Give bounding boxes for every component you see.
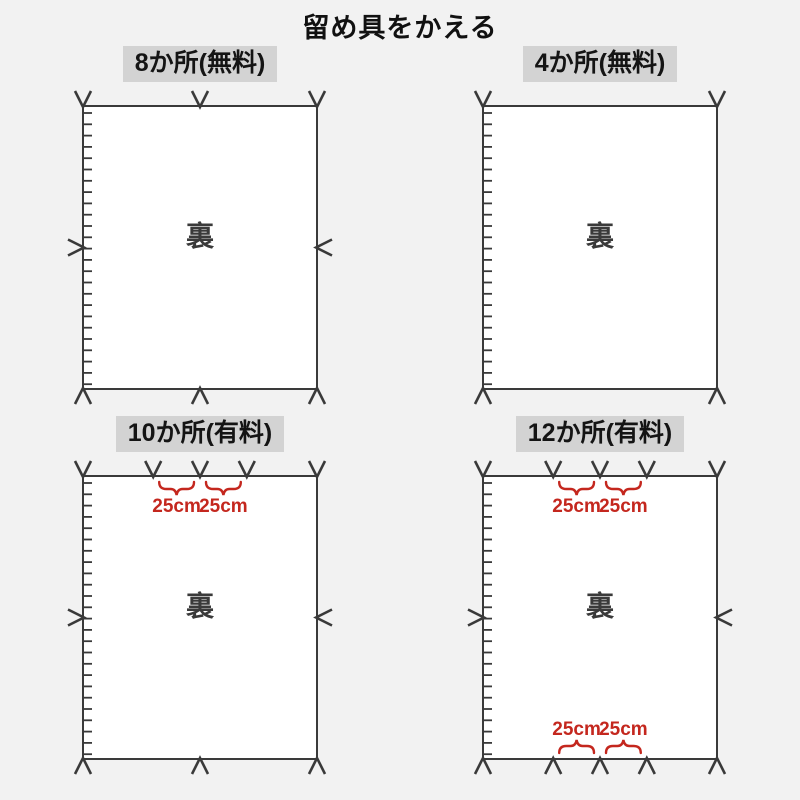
fastener-arrow: [709, 388, 725, 404]
measure-label: 25cm: [552, 719, 601, 740]
fastener-arrow: [309, 91, 325, 107]
fastener-arrow: [592, 461, 608, 477]
measure-label: 25cm: [199, 496, 248, 517]
fastener-arrow: [475, 461, 491, 477]
fastener-arrow: [192, 91, 208, 107]
panel-10-places: 10か所(有料) 裏25cm25cm: [15, 416, 385, 778]
fastener-arrow: [68, 239, 84, 255]
page-title: 留め具をかえる: [0, 6, 800, 45]
fastener-arrow: [468, 609, 484, 625]
fastener-arrow: [639, 758, 655, 774]
panel-header: 12か所(有料): [516, 416, 684, 452]
panel-header: 4か所(無料): [523, 46, 678, 82]
panel-diagram: 裏: [60, 88, 340, 408]
fastener-arrow: [709, 758, 725, 774]
panel-diagram: 裏25cm25cm25cm25cm: [460, 458, 740, 778]
measure-label: 25cm: [599, 496, 648, 517]
fastener-arrow: [716, 609, 732, 625]
fastener-arrow: [75, 388, 91, 404]
measure-label: 25cm: [599, 719, 648, 740]
fastener-diagram: 裏: [60, 88, 340, 408]
fastener-arrow: [475, 91, 491, 107]
panel-header: 8か所(無料): [123, 46, 278, 82]
back-side-label: 裏: [186, 219, 215, 251]
fastener-arrow: [545, 758, 561, 774]
fastener-arrow: [145, 461, 161, 477]
panel-12-places: 12か所(有料) 裏25cm25cm25cm25cm: [415, 416, 785, 778]
back-side-label: 裏: [586, 589, 615, 621]
fastener-arrow: [475, 758, 491, 774]
fastener-arrow: [75, 91, 91, 107]
fastener-diagram: 裏25cm25cm25cm25cm: [460, 458, 740, 778]
panel-header: 10か所(有料): [116, 416, 284, 452]
fastener-arrow: [309, 758, 325, 774]
fastener-arrow: [192, 758, 208, 774]
fastener-diagram: 裏25cm25cm: [60, 458, 340, 778]
fastener-arrow: [68, 609, 84, 625]
fastener-arrow: [709, 461, 725, 477]
fastener-arrow: [316, 239, 332, 255]
fastener-arrow: [309, 461, 325, 477]
panel-diagram: 裏25cm25cm: [60, 458, 340, 778]
back-side-label: 裏: [186, 589, 215, 621]
fastener-arrow: [475, 388, 491, 404]
fastener-arrow: [75, 758, 91, 774]
fastener-arrow: [316, 609, 332, 625]
panel-8-places: 8か所(無料) 裏: [15, 46, 385, 408]
fastener-arrow: [75, 461, 91, 477]
back-side-label: 裏: [586, 219, 615, 251]
fastener-arrow: [239, 461, 255, 477]
fastener-arrow: [639, 461, 655, 477]
fastener-arrow: [192, 388, 208, 404]
measure-label: 25cm: [552, 496, 601, 517]
panel-4-places: 4か所(無料) 裏: [415, 46, 785, 408]
fastener-arrow: [309, 388, 325, 404]
fastener-arrow: [709, 91, 725, 107]
fastener-diagram: 裏: [460, 88, 740, 408]
fastener-arrow: [192, 461, 208, 477]
fastener-arrow: [592, 758, 608, 774]
fastener-arrow: [545, 461, 561, 477]
panel-diagram: 裏: [460, 88, 740, 408]
measure-label: 25cm: [152, 496, 201, 517]
